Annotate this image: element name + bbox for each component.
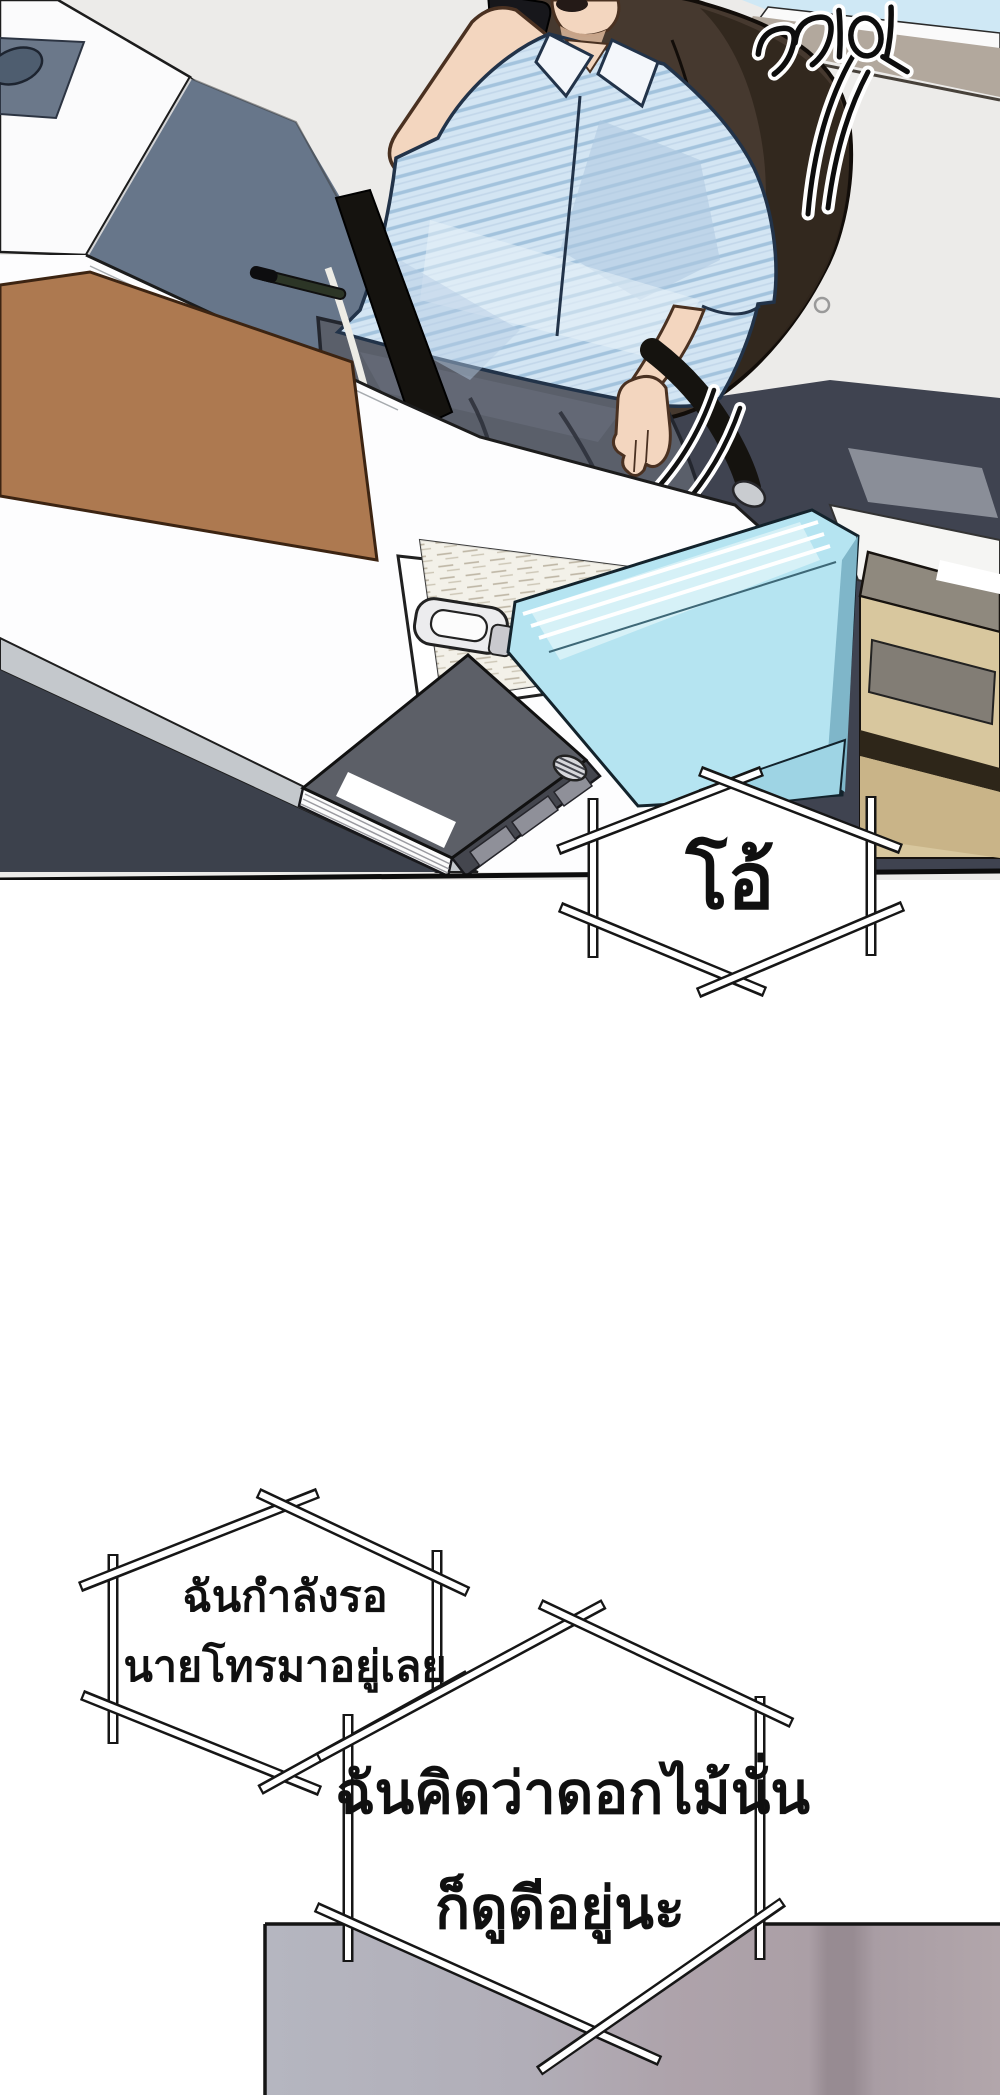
bubble-waiting-line-1: ฉันกำลังรอ xyxy=(95,1562,475,1632)
bubble-flowers-line-2: ก็ดูดีอยู่นะ xyxy=(335,1851,785,1966)
bubble-waiting-line-2: นายโทรมาอยู่เลย xyxy=(95,1632,475,1702)
bubble-flowers-text: ฉันคิดว่าดอกไม้นั่น ก็ดูดีอยู่นะ xyxy=(335,1736,785,1966)
bubble-waiting-text: ฉันกำลังรอ นายโทรมาอยู่เลย xyxy=(95,1562,475,1702)
bubble-oh-line: โอ้ xyxy=(565,826,895,936)
bubble-flowers-line-1: ฉันคิดว่าดอกไม้นั่น xyxy=(335,1736,785,1851)
bubble-oh-text: โอ้ xyxy=(565,826,895,936)
comic-page: โอ้ ฉันกำลังรอ นายโทรมาอยู่เลย ฉันคิดว่า… xyxy=(0,0,1000,2095)
